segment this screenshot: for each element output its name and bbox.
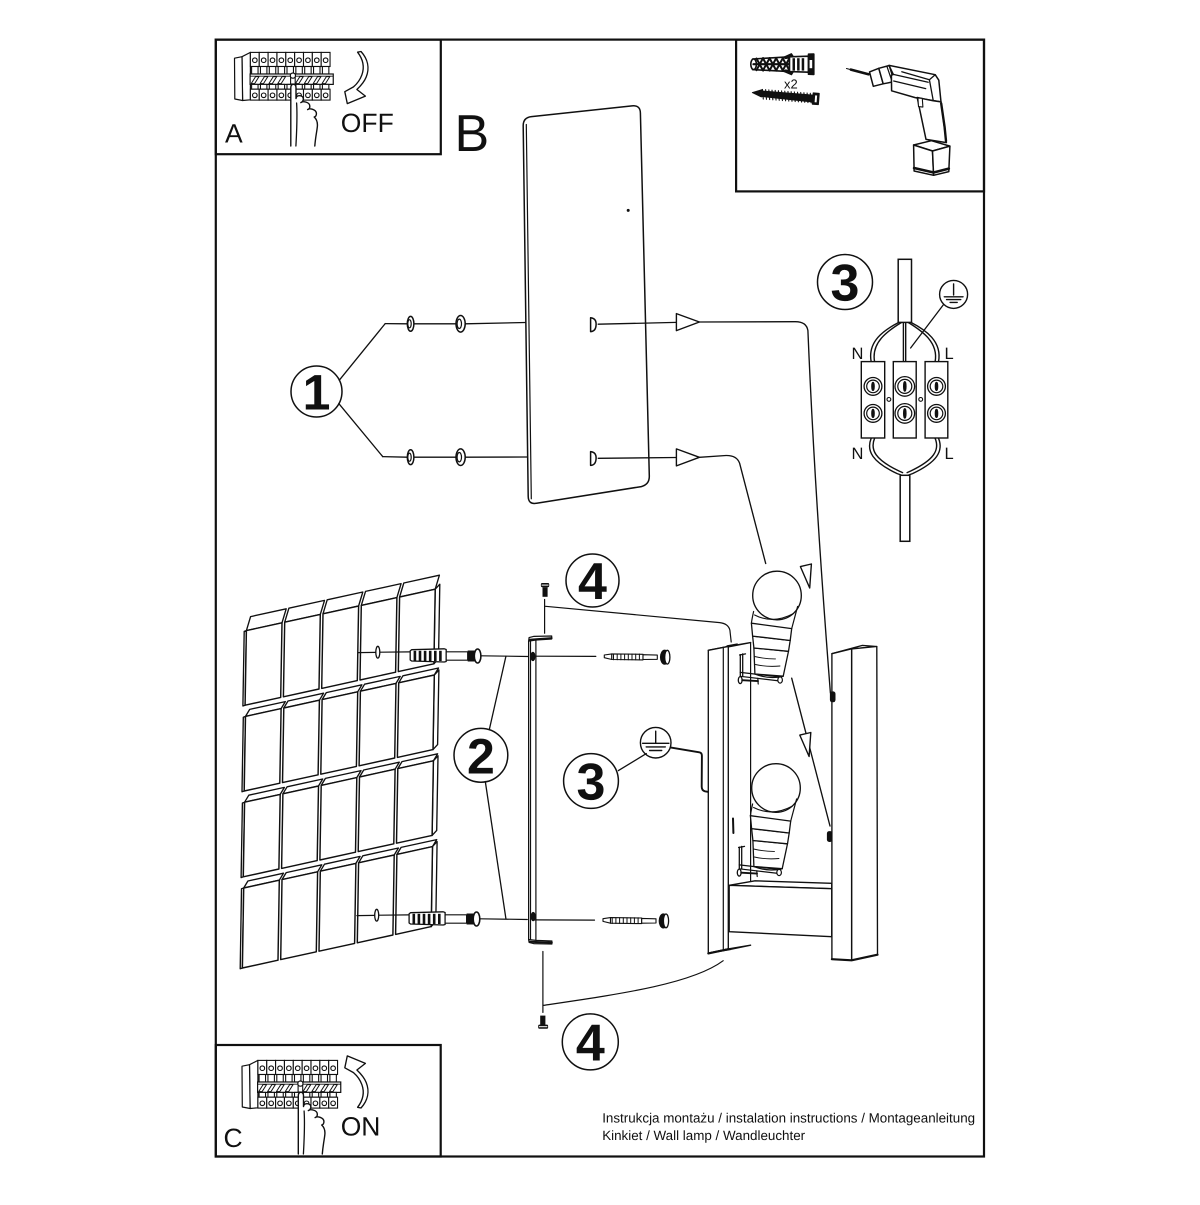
svg-text:1: 1 [303, 365, 331, 421]
svg-text:Kinkiet / Wall lamp / Wandleuc: Kinkiet / Wall lamp / Wandleuchter [602, 1128, 805, 1143]
svg-text:Instrukcja montażu / instalati: Instrukcja montażu / instalation instruc… [602, 1110, 975, 1125]
svg-text:L: L [945, 445, 954, 463]
svg-text:ON: ON [341, 1112, 381, 1142]
svg-text:B: B [455, 105, 490, 163]
svg-text:N: N [852, 345, 864, 363]
svg-text:A: A [225, 119, 243, 149]
svg-text:4: 4 [576, 1015, 605, 1073]
svg-text:3: 3 [577, 754, 606, 812]
svg-text:4: 4 [578, 553, 607, 611]
svg-text:OFF: OFF [341, 108, 394, 138]
svg-text:N: N [852, 445, 864, 463]
svg-text:2: 2 [467, 728, 495, 784]
svg-text:L: L [945, 345, 954, 363]
svg-text:x2: x2 [784, 77, 798, 92]
svg-text:3: 3 [831, 255, 860, 313]
svg-text:C: C [224, 1123, 243, 1153]
